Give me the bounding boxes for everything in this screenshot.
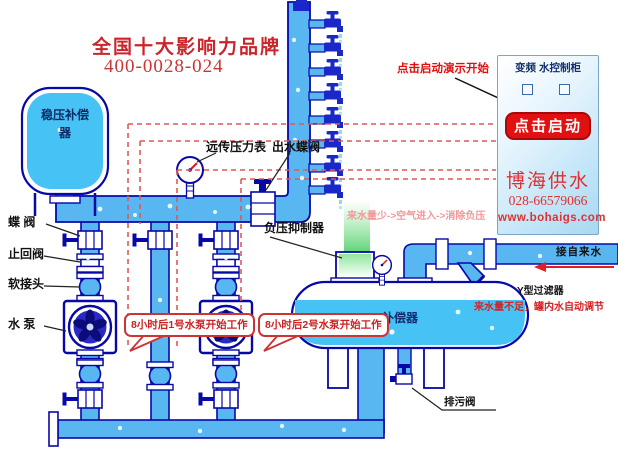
drain-valve-label: 排污阀 (444, 396, 476, 408)
soft-joint-icon (147, 362, 173, 390)
water-supply-demo-screen: 全国十大影响力品牌 400-0028-024 稳压补偿器 蝶 阀 止回阀 软接头… (0, 0, 618, 449)
y-filter-label: Y型过滤器 (517, 286, 564, 298)
remote-pressure-gauge-label: 远传压力表 (206, 141, 266, 155)
brand-title: 全国十大影响力品牌 (92, 32, 281, 59)
indicator-box-icon (522, 84, 533, 95)
low-water-note: 来水量不足，罐内水自动调节 (474, 302, 604, 314)
negative-pressure-suppressor-label: 负压抑制器 (264, 222, 324, 236)
check-valve-icon (77, 254, 103, 272)
air-flow-note: 来水量少->空气进入->消除负压 (347, 211, 485, 223)
pump1-callout: 8小时后1号水泵开始工作 (124, 313, 255, 337)
butterfly-valve-icon (63, 231, 103, 249)
butterfly-valve-icon (63, 390, 103, 408)
control-cabinet: 变频 水控制柜 点击启动 博海供水 028-66579066 www.bohai… (497, 55, 599, 235)
butterfly-valve-icon (133, 231, 173, 249)
company-phone: 028-66579066 (498, 193, 598, 209)
company-name: 博海供水 (498, 166, 598, 193)
start-button[interactable]: 点击启动 (505, 112, 591, 140)
butterfly-valve-icon (199, 231, 239, 249)
tap-water-inlet-label: 接自来水 (556, 246, 602, 258)
pump-1-icon (64, 301, 116, 353)
demo-hint: 点击启动演示开始 (397, 60, 489, 76)
company-website: www.bohaigs.com (498, 212, 598, 224)
outlet-butterfly-valve-label: 出水蝶阀 (272, 141, 320, 155)
soft-joint-icon (213, 273, 239, 301)
surge-tank-label: 稳压补偿器 (39, 106, 91, 142)
water-pump-label: 水 泵 (8, 318, 35, 332)
soft-joint-icon (77, 273, 103, 301)
cabinet-title: 变频 水控制柜 (498, 60, 598, 75)
butterfly-valve-icon (199, 390, 239, 408)
soft-joint-icon (213, 360, 239, 388)
drain-valve-icon (390, 364, 412, 384)
brand-phone: 400-0028-024 (104, 56, 224, 78)
soft-joint-label: 软接头 (8, 278, 44, 292)
butterfly-valve-label: 蝶 阀 (8, 216, 35, 230)
indicator-box-icon (559, 84, 570, 95)
pressure-gauge-icon (177, 157, 203, 198)
outlet-butterfly-valve-icon (251, 179, 275, 226)
check-valve-label: 止回阀 (8, 248, 44, 262)
pump2-callout: 8小时后2号水泵开始工作 (258, 313, 389, 337)
soft-joint-icon (77, 360, 103, 388)
